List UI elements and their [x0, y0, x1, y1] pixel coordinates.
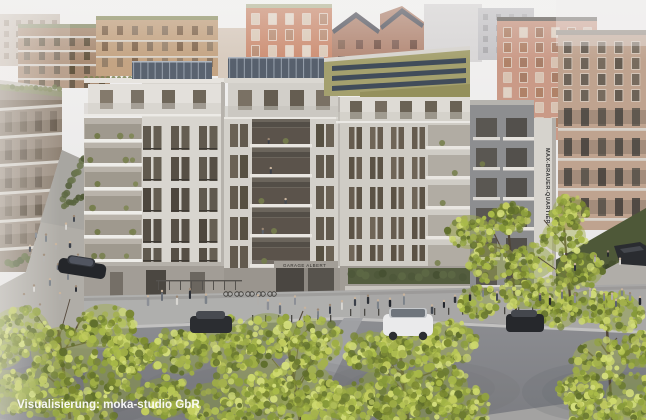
- svg-text:GARAGE ALBERT: GARAGE ALBERT: [283, 263, 326, 268]
- svg-text:Visualisierung: moka-studio Gb: Visualisierung: moka-studio GbR: [17, 398, 200, 411]
